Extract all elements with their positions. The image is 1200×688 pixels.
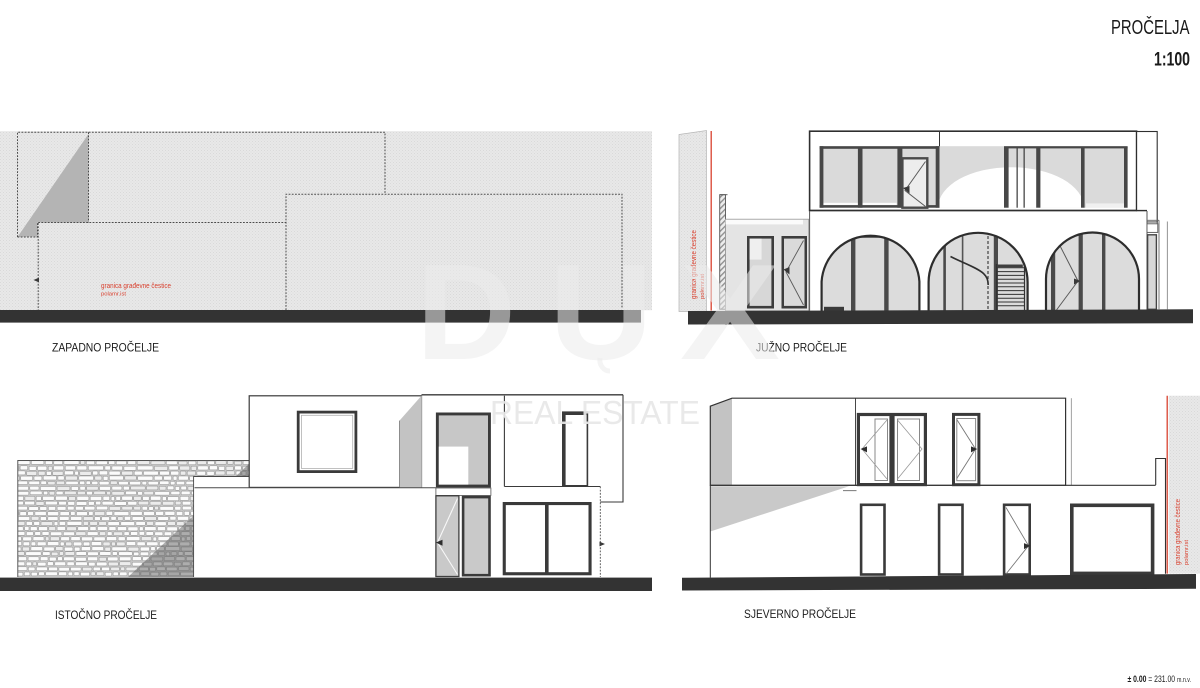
svg-text:polamr.ist: polamr.ist	[101, 292, 127, 298]
svg-text:granica građevne čestice: granica građevne čestice	[1173, 499, 1182, 565]
svg-text:ISTOČNO PROČELJE: ISTOČNO PROČELJE	[55, 607, 157, 622]
svg-text:1:100: 1:100	[1154, 49, 1190, 71]
svg-text:PROČELJA: PROČELJA	[1111, 16, 1190, 39]
svg-text:ZAPADNO PROČELJE: ZAPADNO PROČELJE	[52, 340, 159, 355]
svg-text:polamr.ist: polamr.ist	[1184, 539, 1190, 565]
svg-text:SJEVERNO PROČELJE: SJEVERNO PROČELJE	[744, 606, 856, 621]
svg-text:X: X	[680, 236, 780, 388]
svg-text:D: D	[416, 236, 516, 388]
svg-text:REAL ESTATE: REAL ESTATE	[490, 394, 700, 431]
svg-text:granica građevne čestice: granica građevne čestice	[101, 281, 171, 290]
